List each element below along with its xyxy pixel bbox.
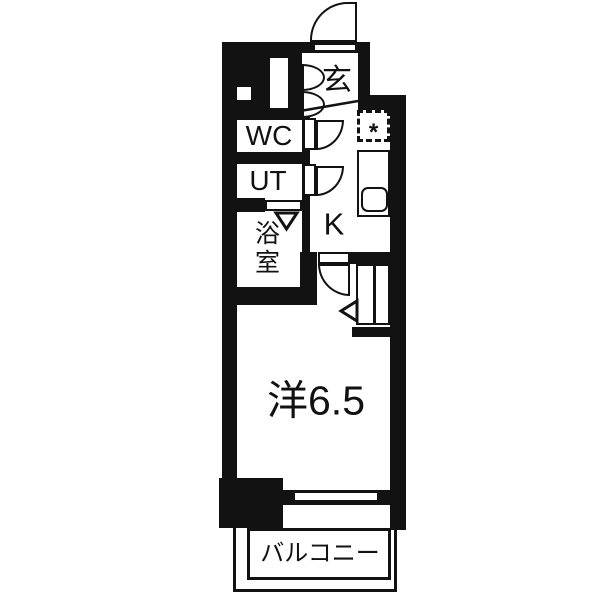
wall-right <box>390 95 406 530</box>
room-door-leaf <box>318 252 350 264</box>
wc-door-leaf <box>303 118 316 150</box>
wall-niche <box>237 87 251 100</box>
kitchen-label: K <box>324 209 345 240</box>
ut-door-leaf <box>303 164 316 196</box>
wall-closet-bottom <box>352 327 390 337</box>
room-door-arc-icon <box>318 264 350 296</box>
floor-plan: * 玄 WC UT 浴室 K 洋6.5 バルコニー <box>0 0 600 600</box>
wc-label: WC <box>246 122 293 150</box>
washing-machine-pan-icon: * <box>357 110 390 142</box>
kitchen-sink-icon <box>361 187 388 212</box>
ut-label: UT <box>249 167 286 195</box>
closet-arrow-icon <box>341 301 357 321</box>
closet-door-panel <box>374 264 390 325</box>
wall-wc-ut-divider <box>237 152 310 164</box>
main-room-label: 洋6.5 <box>267 381 365 422</box>
entrance-label: 玄 <box>322 66 352 96</box>
wall-top-left-mass <box>222 42 302 120</box>
pipe-space <box>270 58 288 108</box>
entrance-door-arc-icon <box>310 2 357 42</box>
wall-room-joint <box>300 252 317 305</box>
bathroom-label: 浴室 <box>253 220 278 278</box>
wall-ut-bath-divider <box>237 198 265 212</box>
balcony-label: バルコニー <box>260 542 380 566</box>
ut-door-arc-icon <box>316 166 344 196</box>
closet-door-panel <box>356 264 375 325</box>
entrance-door-leaf <box>313 43 357 52</box>
wall-room-door-band <box>348 252 390 264</box>
bathroom-door-track <box>265 200 302 211</box>
wc-door-arc-icon <box>316 120 344 150</box>
wall-entrance-right <box>358 53 370 97</box>
wall-left <box>222 110 237 505</box>
